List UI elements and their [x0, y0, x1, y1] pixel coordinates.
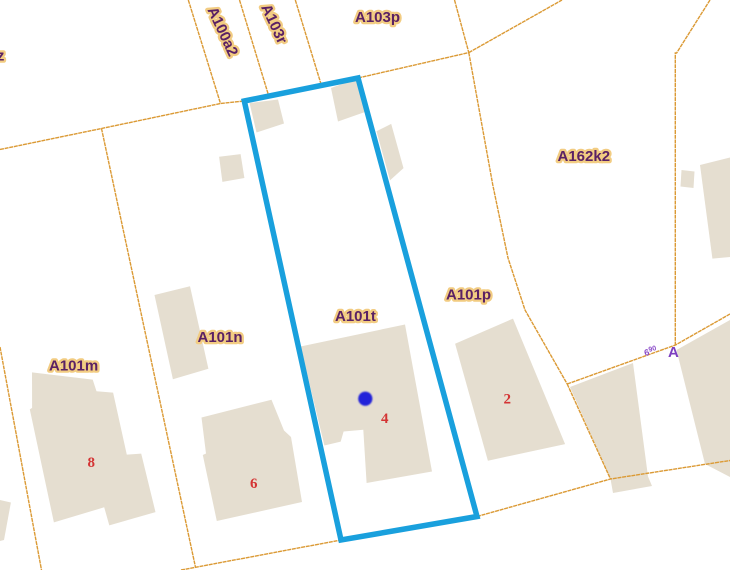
svg-text:A162k2: A162k2 [558, 148, 611, 165]
svg-text:z: z [0, 48, 4, 65]
svg-text:6: 6 [250, 476, 258, 492]
svg-text:A101n: A101n [198, 329, 243, 346]
svg-text:A101t: A101t [335, 308, 376, 325]
svg-text:A103p: A103p [355, 9, 400, 26]
svg-text:A: A [668, 344, 679, 361]
svg-text:4: 4 [381, 411, 389, 427]
svg-text:8: 8 [88, 455, 96, 471]
svg-text:A101p: A101p [446, 287, 491, 304]
svg-text:A101m: A101m [49, 358, 98, 375]
svg-text:2: 2 [504, 392, 512, 408]
